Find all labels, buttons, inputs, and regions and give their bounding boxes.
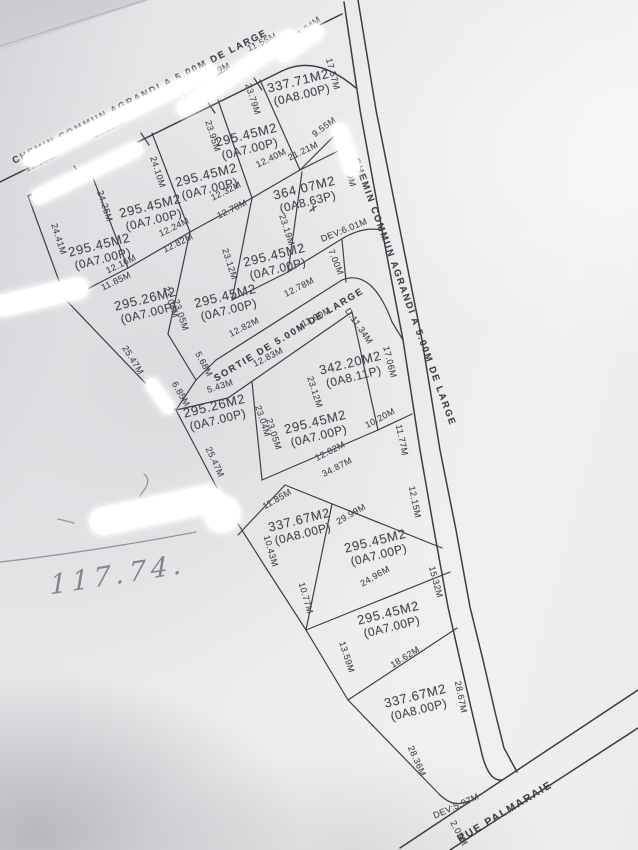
survey-plan-photo: CHEMIN COMMUN AGRANDI A 5.00M DE LARGECH…	[0, 0, 638, 850]
paper-edge-line	[0, 0, 146, 46]
whiteout-mark	[204, 496, 240, 532]
